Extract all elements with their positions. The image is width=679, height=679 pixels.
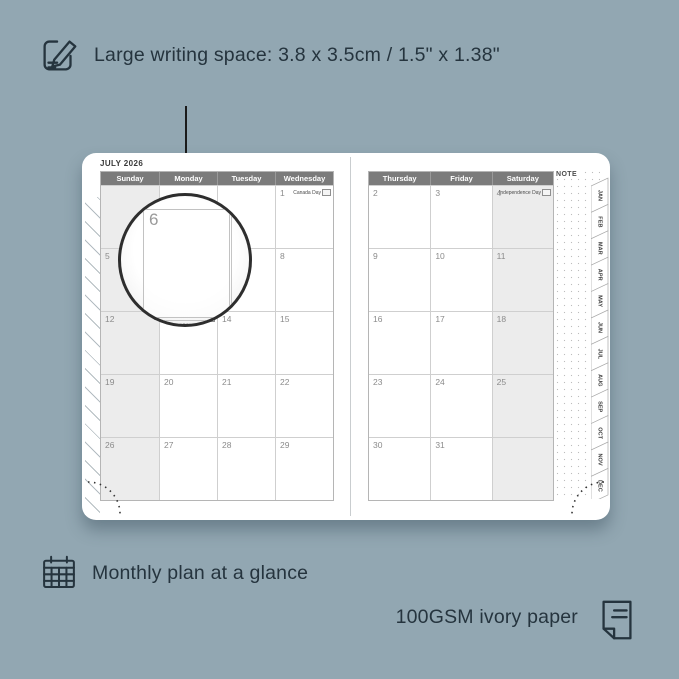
paper-icon	[594, 596, 640, 646]
calendar-cell: 18	[492, 311, 553, 374]
date-number: 24	[435, 377, 444, 387]
bottom-right-annotation-text: 100GSM ivory paper	[396, 606, 578, 629]
date-number: 19	[105, 377, 114, 387]
calendar-cell: 28	[217, 437, 275, 500]
month-tab-label: APR	[597, 269, 603, 281]
calendar-cell: 27	[159, 437, 217, 500]
left-page-tab-edges	[85, 197, 100, 515]
month-tab-label: JAN	[597, 190, 603, 201]
planner-spread: JULY 2026 SundayMondayTuesdayWednesday1C…	[82, 153, 610, 520]
weekday-header: Wednesday	[275, 172, 333, 185]
date-number: 12	[105, 314, 114, 324]
month-tab-label: MAY	[597, 295, 603, 307]
month-tab-label: OCT	[597, 427, 603, 439]
date-number: 25	[497, 377, 506, 387]
calendar-cell: 29	[275, 437, 333, 500]
calendar-cell: 11	[492, 248, 553, 311]
top-annotation: Large writing space: 3.8 x 3.5cm / 1.5" …	[36, 32, 500, 78]
date-number: 2	[373, 188, 378, 198]
calendar-cell: 25	[492, 374, 553, 437]
spine	[350, 157, 351, 516]
right-page-grid: ThursdayFridaySaturday234Independence Da…	[368, 171, 554, 501]
magnified-column-line	[231, 196, 232, 320]
weekday-header: Friday	[430, 172, 491, 185]
calendar-cell: 20	[159, 374, 217, 437]
date-number: 3	[435, 188, 440, 198]
calendar-cell: 8	[275, 248, 333, 311]
date-number: 5	[105, 251, 110, 261]
calendar-cell: 22	[275, 374, 333, 437]
magnified-date: 6	[149, 210, 158, 230]
date-number: 22	[280, 377, 289, 387]
date-number: 28	[222, 440, 231, 450]
calendar-cell: 1Canada Day	[275, 185, 333, 248]
calendar-cell: 21	[217, 374, 275, 437]
calendar-cell: 23	[369, 374, 430, 437]
calendar-cell: 2	[369, 185, 430, 248]
date-number: 26	[105, 440, 114, 450]
month-tab-label: DEC	[597, 480, 603, 492]
calendar-cell: 30	[369, 437, 430, 500]
holiday-flag-badge	[322, 189, 331, 196]
weekday-header: Sunday	[101, 172, 159, 185]
weekday-header: Thursday	[369, 172, 430, 185]
calendar-icon	[38, 552, 80, 594]
date-number: 29	[280, 440, 289, 450]
date-number: 21	[222, 377, 231, 387]
date-number: 17	[435, 314, 444, 324]
weekday-header: Tuesday	[217, 172, 275, 185]
date-number: 9	[373, 251, 378, 261]
month-tabs: JANFEBMARAPRMAYJUNJULAUGSEPOCTNOVDEC	[591, 175, 610, 499]
date-number: 18	[497, 314, 506, 324]
date-number: 27	[164, 440, 173, 450]
product-image: Large writing space: 3.8 x 3.5cm / 1.5" …	[0, 0, 679, 679]
month-tab-label: SEP	[597, 401, 603, 412]
magnified-row-line	[121, 320, 249, 321]
month-tab-label: AUG	[597, 374, 603, 386]
date-number: 16	[373, 314, 382, 324]
date-number: 8	[280, 251, 285, 261]
top-annotation-text: Large writing space: 3.8 x 3.5cm / 1.5" …	[94, 44, 500, 67]
weekday-header: Saturday	[492, 172, 553, 185]
calendar-cell: 3	[430, 185, 491, 248]
calendar-cell: 10	[430, 248, 491, 311]
magnifier-circle: 6 7 13 Orangemen's Day (n.i.)	[118, 193, 252, 327]
magnified-adjacent-date: 7	[237, 210, 246, 230]
calendar-cell: 4Independence Day	[492, 185, 553, 248]
bottom-left-annotation: Monthly plan at a glance	[38, 552, 308, 594]
month-tab-label: FEB	[597, 216, 603, 227]
date-number: 20	[164, 377, 173, 387]
note-label: NOTE	[556, 171, 579, 178]
calendar-cell: 31	[430, 437, 491, 500]
calendar-cell: 9	[369, 248, 430, 311]
date-number: 23	[373, 377, 382, 387]
month-tab-label: MAR	[597, 242, 603, 255]
calendar-cell: 16	[369, 311, 430, 374]
month-tab-label: JUL	[597, 349, 603, 360]
calendar-cell: 17	[430, 311, 491, 374]
date-number: 10	[435, 251, 444, 261]
date-number: 11	[497, 251, 506, 261]
date-number: 1	[280, 188, 285, 198]
holiday-flag-badge	[542, 189, 551, 196]
month-tab-label: JUN	[597, 322, 603, 333]
calendar-cell: 24	[430, 374, 491, 437]
date-number: 30	[373, 440, 382, 450]
note-pencil-icon	[36, 32, 82, 78]
calendar-cell	[492, 437, 553, 500]
holiday-label: Independence Day	[499, 189, 551, 196]
calendar-cell: 15	[275, 311, 333, 374]
calendar-cell: 19	[101, 374, 159, 437]
month-title: JULY 2026	[100, 159, 143, 168]
bottom-left-annotation-text: Monthly plan at a glance	[92, 562, 308, 585]
date-number: 31	[435, 440, 444, 450]
month-tab-label: NOV	[597, 453, 603, 465]
calendar-cell: 26	[101, 437, 159, 500]
holiday-label: Canada Day	[293, 189, 331, 196]
date-number: 15	[280, 314, 289, 324]
weekday-header: Monday	[159, 172, 217, 185]
